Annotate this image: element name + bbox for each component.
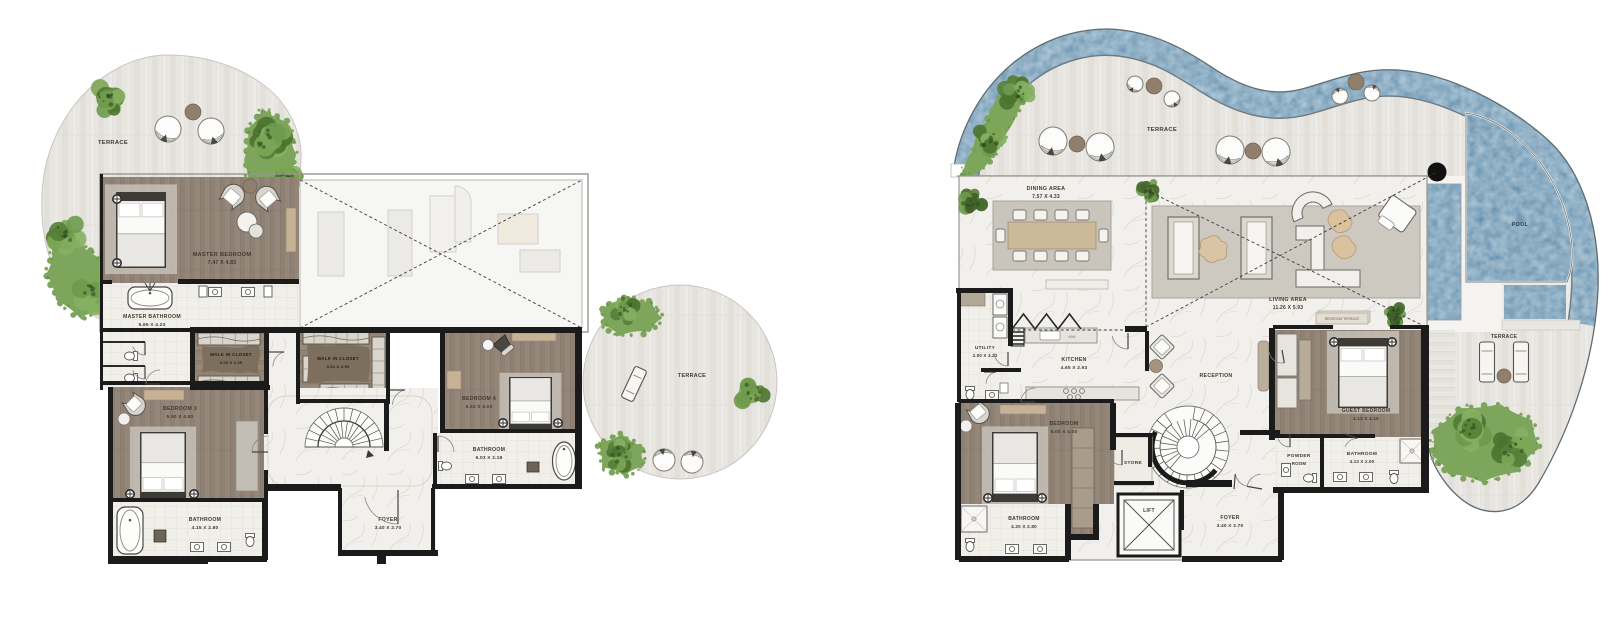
- svg-text:4.20 X 2.80: 4.20 X 2.80: [1011, 524, 1037, 529]
- svg-text:POWDER: POWDER: [1287, 453, 1311, 459]
- svg-text:3.40 X 2.70: 3.40 X 2.70: [1217, 523, 1244, 529]
- svg-text:STORE: STORE: [1124, 460, 1142, 466]
- svg-text:BEDROOM 3: BEDROOM 3: [163, 406, 197, 412]
- svg-text:11.26 X 5.93: 11.26 X 5.93: [1273, 305, 1304, 311]
- svg-text:BEDROOM TERRACE: BEDROOM TERRACE: [1325, 317, 1360, 321]
- svg-text:4.13 X 2.00: 4.13 X 2.00: [1350, 459, 1375, 464]
- svg-text:5.00 X 4.00: 5.00 X 4.00: [1051, 429, 1078, 435]
- svg-text:GUEST BEDROOM: GUEST BEDROOM: [1342, 408, 1391, 414]
- svg-text:DINING AREA: DINING AREA: [1027, 186, 1066, 192]
- svg-text:3.06 X 2.29: 3.06 X 2.29: [220, 360, 243, 365]
- svg-text:6.03 X 2.18: 6.03 X 2.18: [476, 455, 503, 461]
- svg-text:MASTER BATHROOM: MASTER BATHROOM: [123, 314, 181, 320]
- svg-text:7.47 X 4.83: 7.47 X 4.83: [208, 260, 237, 266]
- svg-text:4.15 X 2.80: 4.15 X 2.80: [192, 525, 219, 531]
- svg-text:WALK IN CLOSET: WALK IN CLOSET: [317, 356, 359, 361]
- svg-text:ROOM: ROOM: [1292, 461, 1307, 466]
- svg-text:WALK IN CLOSET: WALK IN CLOSET: [210, 352, 252, 357]
- svg-text:POOL: POOL: [1512, 222, 1529, 228]
- svg-text:MW: MW: [1068, 334, 1075, 339]
- svg-text:KITCHEN: KITCHEN: [1061, 357, 1086, 363]
- svg-text:BATHROOM: BATHROOM: [1008, 516, 1039, 522]
- svg-text:FOYER: FOYER: [1220, 515, 1239, 521]
- svg-text:BEDROOM: BEDROOM: [1049, 421, 1078, 427]
- svg-text:RECEPTION: RECEPTION: [1200, 373, 1233, 379]
- svg-text:5.50 X 4.50: 5.50 X 4.50: [167, 414, 194, 420]
- svg-text:LIFT: LIFT: [1143, 508, 1155, 514]
- svg-text:4.13 X 4.15: 4.13 X 4.15: [1353, 416, 1379, 421]
- svg-text:MASTER BEDROOM: MASTER BEDROOM: [193, 252, 252, 258]
- svg-text:TERRACE: TERRACE: [1491, 334, 1518, 340]
- svg-text:5.53 X 4.03: 5.53 X 4.03: [466, 404, 493, 410]
- svg-text:LIVING AREA: LIVING AREA: [1269, 297, 1307, 303]
- svg-text:3.51 X 2.93: 3.51 X 2.93: [327, 364, 350, 369]
- svg-text:7.57 X 4.33: 7.57 X 4.33: [1032, 194, 1060, 200]
- svg-text:BEDROOM 4: BEDROOM 4: [462, 396, 496, 402]
- svg-text:5.65 X 4.23: 5.65 X 4.23: [139, 322, 166, 328]
- svg-text:BATHROOM: BATHROOM: [189, 517, 222, 523]
- svg-text:TERRACE: TERRACE: [98, 140, 128, 146]
- svg-text:BATHROOM: BATHROOM: [1347, 451, 1377, 457]
- svg-text:3.40 X 2.70: 3.40 X 2.70: [375, 525, 402, 531]
- svg-text:4.65 X 2.93: 4.65 X 2.93: [1061, 365, 1088, 371]
- svg-text:TERRACE: TERRACE: [678, 373, 706, 379]
- svg-text:TERRACE: TERRACE: [1147, 127, 1177, 133]
- svg-text:BATHROOM: BATHROOM: [473, 447, 506, 453]
- svg-text:UTILITY: UTILITY: [975, 345, 996, 351]
